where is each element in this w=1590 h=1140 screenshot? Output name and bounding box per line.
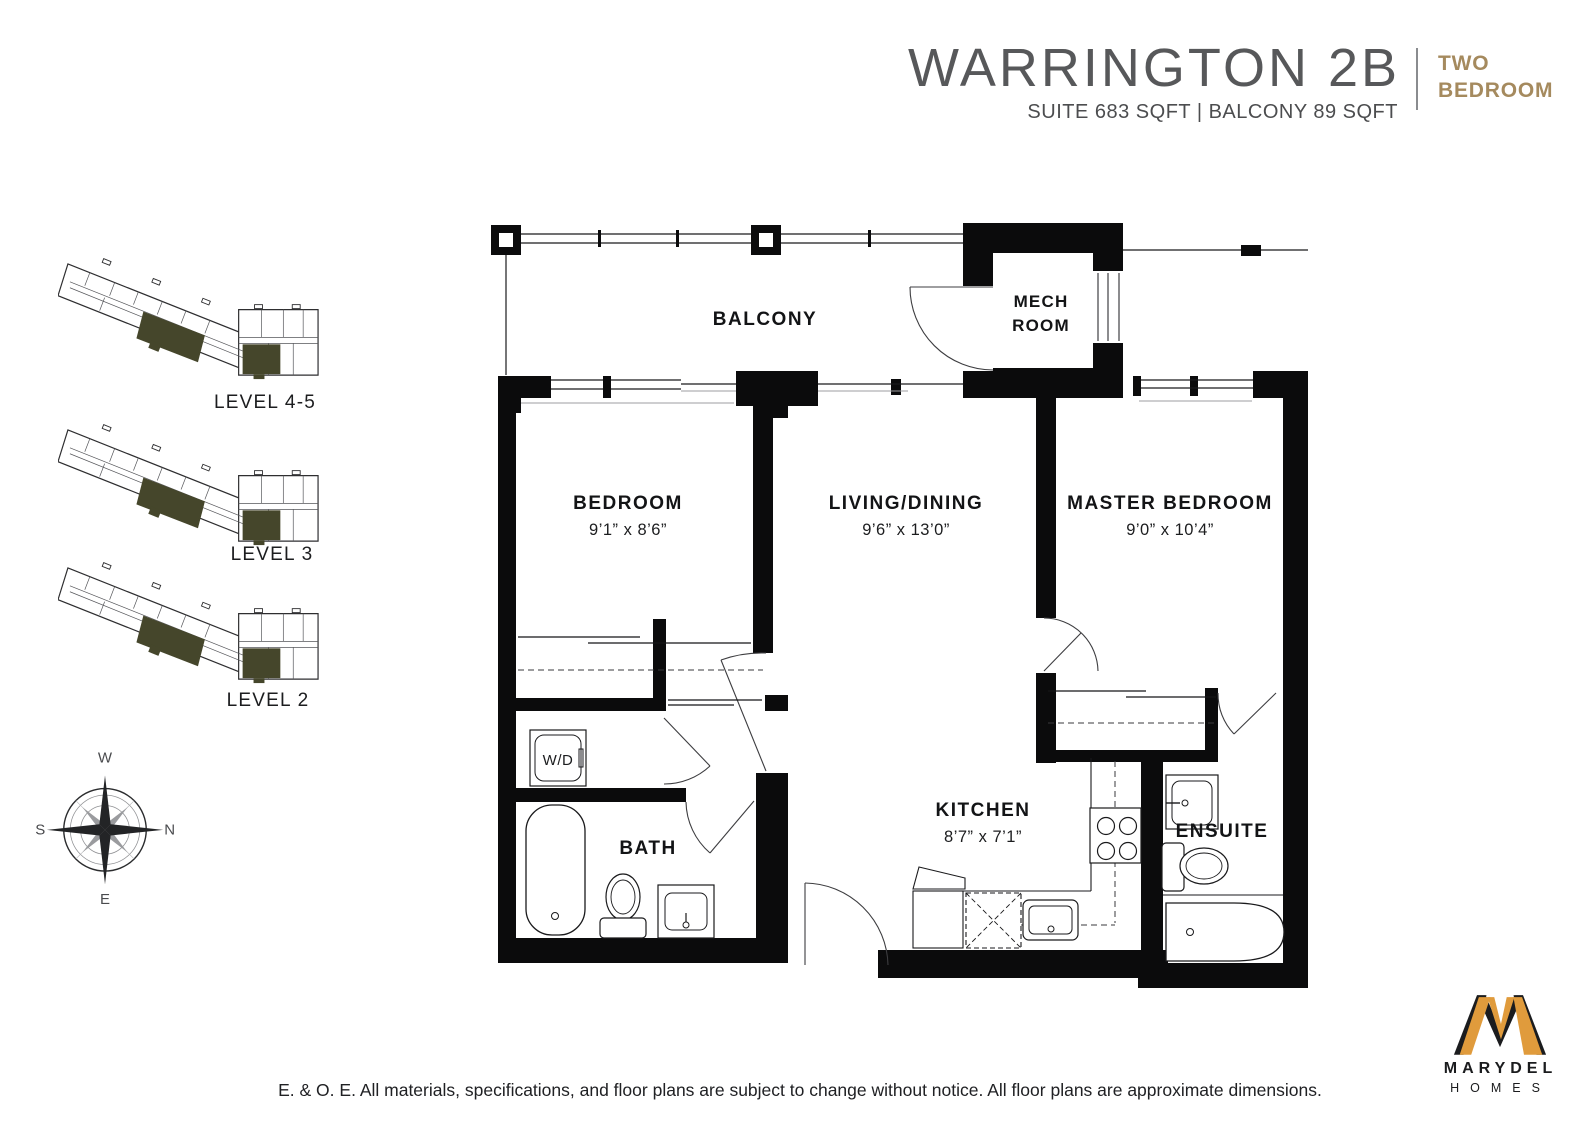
unit-type-line2: BEDROOM bbox=[1438, 77, 1553, 104]
bathtub bbox=[526, 805, 585, 935]
floorplan-sheet: { "header": { "title": "WARRINGTON 2B", … bbox=[0, 0, 1590, 1140]
master-bedroom-label: MASTER BEDROOM bbox=[1067, 493, 1273, 514]
living-dining-label: LIVING/DINING bbox=[829, 493, 984, 514]
pantry bbox=[913, 891, 963, 948]
key-plan-level-4-5-drawing bbox=[58, 248, 326, 397]
bedroom-label: BEDROOM bbox=[573, 493, 683, 514]
kitchen-fixtures bbox=[913, 758, 1141, 948]
kitchen-label: KITCHEN bbox=[936, 800, 1031, 821]
page-subtitle: SUITE 683 SQFT | BALCONY 89 SQFT bbox=[900, 101, 1400, 124]
logo-name: MARYDEL bbox=[1418, 1060, 1583, 1078]
floor-plan: BALCONY MECH ROOM BEDROOM 9’1” x 8’6” LI… bbox=[478, 213, 1338, 1003]
windows bbox=[521, 380, 1253, 403]
balcony-railing bbox=[506, 234, 1308, 375]
bath-fixtures bbox=[526, 805, 714, 938]
unit-type-line1: TWO bbox=[1438, 50, 1553, 77]
disclaimer-text: E. & O. E. All materials, specifications… bbox=[150, 1080, 1450, 1101]
unit-type-badge: TWO BEDROOM bbox=[1438, 50, 1553, 105]
key-plan-level-4-5 bbox=[58, 248, 326, 402]
mech-room-label-line2: ROOM bbox=[1012, 316, 1070, 335]
bedroom-dimensions: 9’1” x 8’6” bbox=[589, 521, 667, 539]
bath-label: BATH bbox=[619, 838, 676, 859]
key-plan-level-2-drawing bbox=[58, 552, 326, 701]
stove bbox=[1090, 808, 1141, 863]
compass-icon bbox=[30, 742, 180, 912]
header-divider bbox=[1416, 48, 1418, 110]
ensuite-label: ENSUITE bbox=[1176, 821, 1269, 842]
marydel-logo-icon bbox=[1452, 994, 1548, 1061]
key-plan-level-3-drawing bbox=[58, 414, 326, 563]
compass-rose bbox=[30, 742, 180, 917]
ensuite-tub bbox=[1166, 903, 1284, 961]
master-bedroom-dimensions: 9’0” x 10’4” bbox=[1126, 521, 1214, 539]
logo-suffix: HOMES bbox=[1418, 1081, 1583, 1095]
header: WARRINGTON 2B SUITE 683 SQFT | BALCONY 8… bbox=[900, 40, 1400, 124]
washer-dryer-label: W/D bbox=[543, 752, 574, 769]
balcony-posts bbox=[491, 225, 1261, 256]
kitchen-dimensions: 8’7” x 7’1” bbox=[944, 828, 1022, 846]
ensuite-fixtures bbox=[1162, 775, 1284, 961]
key-plan-level-2 bbox=[58, 552, 326, 706]
page-title: WARRINGTON 2B bbox=[900, 40, 1400, 97]
level-2-label: LEVEL 2 bbox=[158, 690, 378, 712]
room-labels: BALCONY MECH ROOM BEDROOM 9’1” x 8’6” LI… bbox=[543, 292, 1273, 859]
mech-room-label-line1: MECH bbox=[1014, 292, 1069, 311]
balcony-label: BALCONY bbox=[713, 309, 817, 330]
living-dining-dimensions: 9’6” x 13’0” bbox=[862, 521, 950, 539]
level-4-5-label: LEVEL 4-5 bbox=[155, 392, 375, 414]
